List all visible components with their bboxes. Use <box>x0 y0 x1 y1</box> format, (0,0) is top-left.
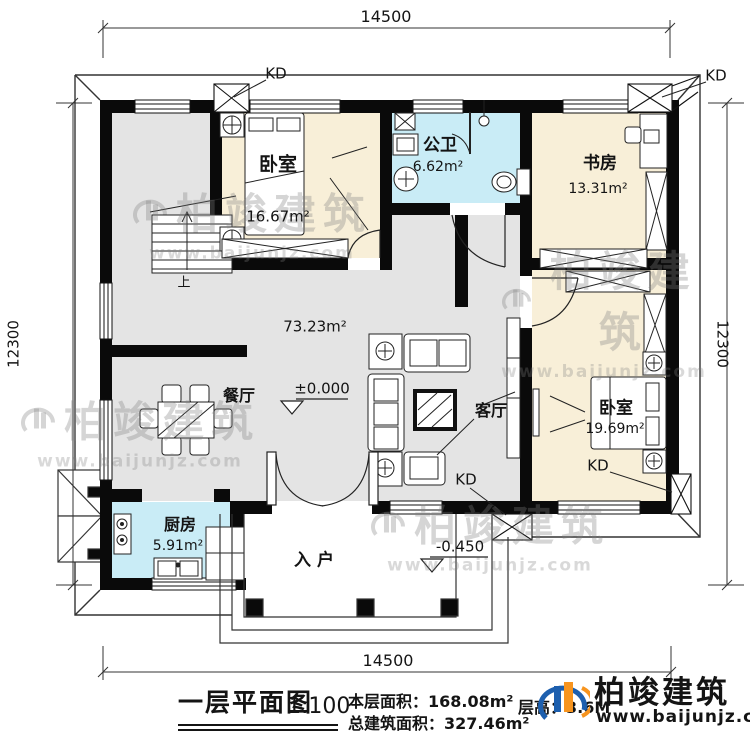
total-area-line: 总建筑面积：327.46m² <box>348 716 529 732</box>
room-label-entry: 入户 <box>294 553 340 570</box>
dim-left: 12300 <box>7 320 22 368</box>
floor-area-line: 本层面积：168.08m² <box>348 694 513 710</box>
kd-label-bottom-center: KD <box>455 473 476 488</box>
total-area-value: 327.46m² <box>444 714 529 733</box>
room-area-study: 13.31m² <box>568 182 627 196</box>
title-underline <box>178 724 338 726</box>
room-label-bathroom: 公卫 <box>423 138 457 155</box>
room-area-hall: 73.23m² <box>283 320 347 335</box>
title-underline <box>178 729 338 731</box>
room-label-kitchen: 厨房 <box>164 517 196 533</box>
room-area-bathroom: 6.62m² <box>413 160 463 174</box>
kd-label-top-left: KD <box>265 67 286 82</box>
level-entry: -0.450 <box>436 540 484 555</box>
room-area-bedroom2: 19.69m² <box>585 422 644 436</box>
room-area-kitchen: 5.91m² <box>153 539 203 553</box>
room-label-study: 书房 <box>583 156 617 173</box>
floorplan-page: 柏竣建筑 www.baijunjz.com 柏竣建筑 www.baijunjz.… <box>0 0 750 741</box>
stairs-up-label: 上 <box>177 277 190 290</box>
level-main: ±0.000 <box>294 382 350 397</box>
chimney <box>58 470 102 562</box>
brand-site: www.baijunjz.com <box>596 709 750 726</box>
floorplan-drawing <box>0 0 750 741</box>
room-label-bedroom1: 卧室 <box>259 156 297 175</box>
plan-scale: 1:100 <box>287 696 350 718</box>
brand-logo-icon <box>538 676 590 730</box>
total-area-label: 总建筑面积： <box>348 714 444 733</box>
room-label-bedroom2: 卧室 <box>599 401 633 418</box>
floor-area-value: 168.08m² <box>428 692 513 711</box>
kd-label-bottom-right: KD <box>587 459 608 474</box>
dim-top: 14500 <box>361 9 412 25</box>
dim-bottom: 14500 <box>363 653 414 669</box>
entry-porch <box>220 514 508 643</box>
room-area-bedroom1: 16.67m² <box>246 210 310 225</box>
room-label-dining: 餐厅 <box>223 388 255 404</box>
room-label-living: 客厅 <box>475 403 507 419</box>
floor-area-label: 本层面积： <box>348 692 428 711</box>
dim-right: 12300 <box>715 320 730 368</box>
brand-name: 柏竣建筑 <box>594 678 730 709</box>
kd-label-top-right: KD <box>705 69 726 84</box>
